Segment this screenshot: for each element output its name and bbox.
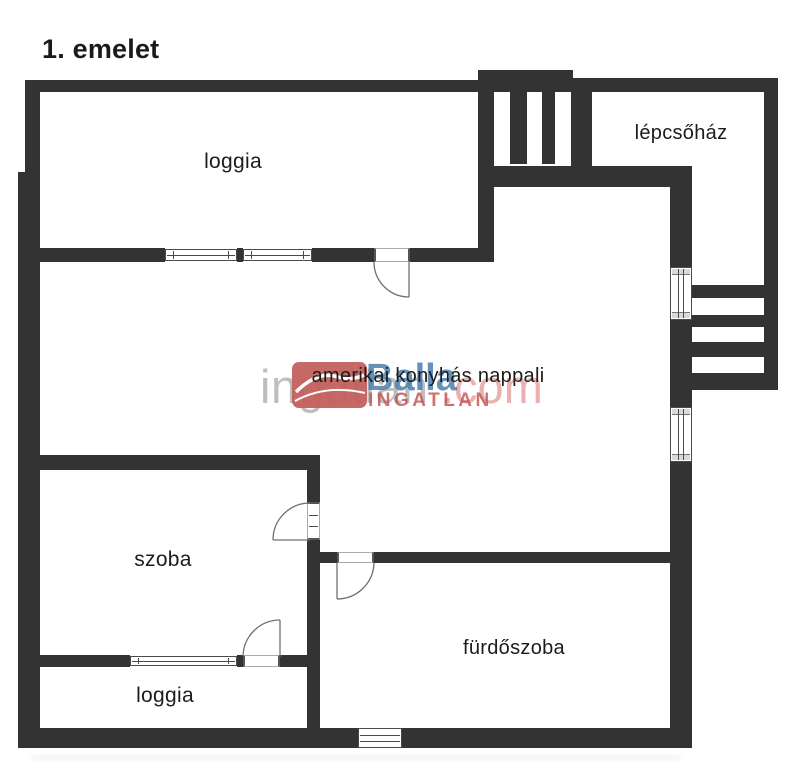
- room-label-nappali: amerikai konyhás nappali: [312, 365, 545, 388]
- room-label-szoba: szoba: [134, 548, 192, 572]
- room-label-loggia-top: loggia: [204, 150, 262, 174]
- door-arc-furdo: [337, 563, 374, 599]
- door-arc-loggia-top: [374, 262, 409, 297]
- brand-subtitle: INGATLAN: [368, 391, 493, 410]
- room-label-loggia-bottom: loggia: [136, 684, 194, 708]
- room-label-lepcsohaz: lépcsőház: [635, 122, 728, 145]
- floor-plan: 1. emelet: [0, 0, 795, 768]
- door-arc-szoba-right: [273, 503, 310, 540]
- door-arc-szoba-loggia: [243, 620, 280, 656]
- room-label-furdoszoba: fürdőszoba: [463, 637, 565, 660]
